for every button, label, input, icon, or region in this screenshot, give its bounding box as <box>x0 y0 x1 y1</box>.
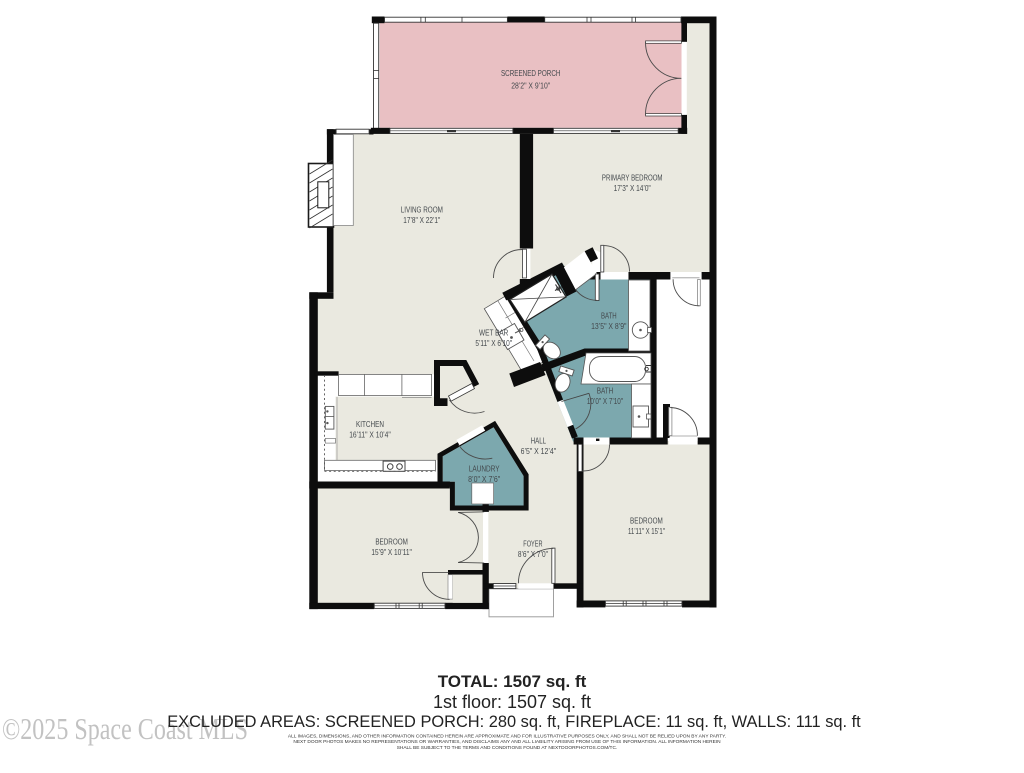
svg-text:8’6" X 7’0": 8’6" X 7’0" <box>518 550 548 559</box>
svg-text:BEDROOM: BEDROOM <box>375 536 408 546</box>
svg-text:15’9" X 10’11": 15’9" X 10’11" <box>371 548 411 557</box>
svg-text:SCREENED PORCH: SCREENED PORCH <box>501 68 561 78</box>
svg-text:NEXT DOOR PHOTOS MAKES NO REPR: NEXT DOOR PHOTOS MAKES NO REPRESENTATION… <box>293 739 721 745</box>
svg-text:SHALL BE SUBJECT TO THE TERMS: SHALL BE SUBJECT TO THE TERMS AND CONDIT… <box>397 745 618 751</box>
svg-text:17’8" X 22’1": 17’8" X 22’1" <box>403 216 440 225</box>
svg-text:KITCHEN: KITCHEN <box>356 419 384 429</box>
svg-text:8’0" X 7’6": 8’0" X 7’6" <box>468 475 500 484</box>
svg-text:16’11" X 10’4": 16’11" X 10’4" <box>349 431 391 440</box>
svg-text:TOTAL: 1507 sq. ft: TOTAL: 1507 sq. ft <box>438 672 587 691</box>
svg-text:FOYER: FOYER <box>523 539 542 549</box>
svg-text:BATH: BATH <box>601 311 617 321</box>
svg-text:WET BAR: WET BAR <box>479 327 508 337</box>
svg-text:28’2" X 9’10": 28’2" X 9’10" <box>511 81 550 90</box>
svg-text:BATH: BATH <box>597 386 614 396</box>
svg-text:1st floor: 1507 sq. ft: 1st floor: 1507 sq. ft <box>433 692 591 712</box>
svg-text:ALL IMAGES, DIMENSIONS, AND OT: ALL IMAGES, DIMENSIONS, AND OTHER INFORM… <box>288 734 726 740</box>
svg-text:EXCLUDED AREAS: SCREENED PORCH: EXCLUDED AREAS: SCREENED PORCH: 280 sq. … <box>167 713 861 731</box>
svg-text:BEDROOM: BEDROOM <box>630 516 663 526</box>
svg-text:17’3" X 14’0": 17’3" X 14’0" <box>614 184 651 193</box>
svg-text:6’5" X 12’4": 6’5" X 12’4" <box>521 447 557 456</box>
svg-text:HALL: HALL <box>531 436 546 446</box>
svg-text:11’11" X 15’1": 11’11" X 15’1" <box>628 527 665 536</box>
svg-text:LAUNDRY: LAUNDRY <box>469 464 500 474</box>
svg-text:5’11" X 6’10": 5’11" X 6’10" <box>475 339 512 348</box>
svg-text:13’5" X 8’9": 13’5" X 8’9" <box>591 322 626 331</box>
svg-text:10’0" X 7’10": 10’0" X 7’10" <box>587 397 623 406</box>
svg-text:PRIMARY BEDROOM: PRIMARY BEDROOM <box>602 173 663 183</box>
svg-text:LIVING ROOM: LIVING ROOM <box>401 205 443 215</box>
